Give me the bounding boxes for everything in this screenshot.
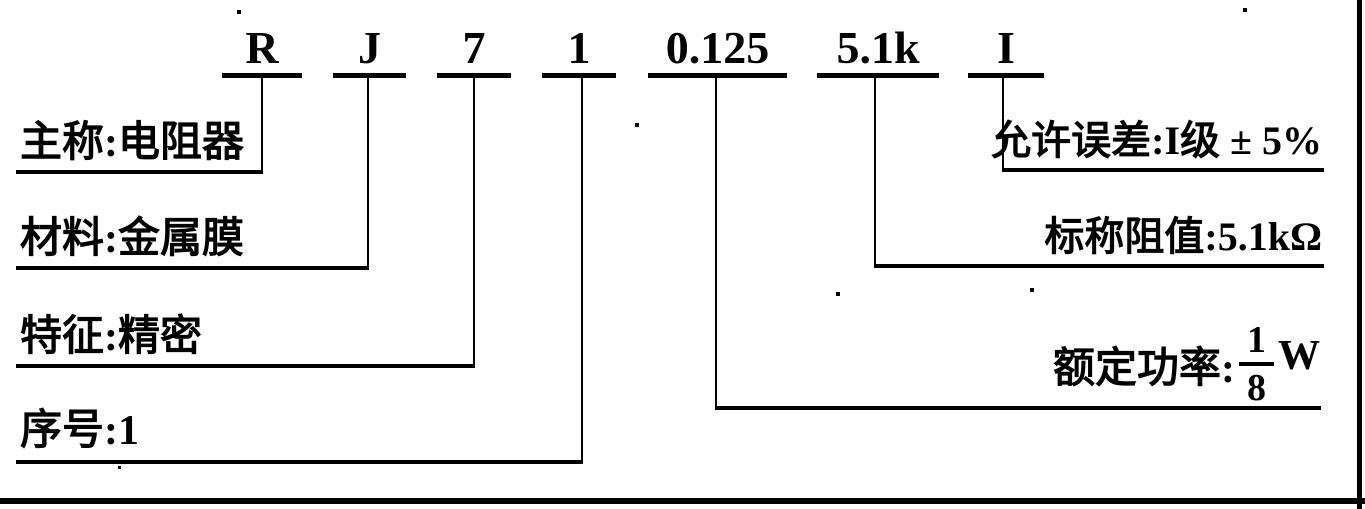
frame-border-right (1357, 0, 1362, 509)
rated-power-fraction: 1 8 (1239, 320, 1274, 408)
rated-power-unit: W (1278, 332, 1320, 380)
code-underline (542, 73, 616, 78)
rule-line-main-name (16, 170, 263, 174)
label-resistance: 标称阻值:5.1kΩ (1044, 212, 1322, 262)
connector-line-serial (581, 78, 583, 462)
rule-line-serial (16, 460, 583, 464)
speckle (237, 10, 241, 14)
code-symbol-material: J (333, 24, 406, 78)
fraction-numerator: 1 (1239, 320, 1274, 366)
code-symbol-resistance: 5.1k (817, 24, 939, 78)
code-symbol-text: I (968, 24, 1044, 72)
code-symbol-text: 1 (542, 24, 616, 72)
speckle (1030, 288, 1034, 292)
rule-line-resistance (874, 264, 1324, 268)
connector-line-material (367, 78, 369, 268)
code-symbol-tolerance: I (968, 24, 1044, 78)
speckle (635, 123, 639, 127)
rule-line-feature (16, 364, 475, 368)
connector-line-main-name (261, 78, 263, 172)
code-underline (817, 73, 939, 78)
label-tolerance: 允许误差:I级 ± 5% (991, 116, 1322, 166)
label-rated-power: 额定功率: 1 8 W (1053, 320, 1320, 408)
rule-line-tolerance (1002, 168, 1324, 172)
speckle (1243, 8, 1247, 12)
code-symbol-text: 7 (437, 24, 511, 72)
connector-line-feature (473, 78, 475, 366)
code-symbol-feature: 7 (437, 24, 511, 78)
fraction-denominator: 8 (1247, 366, 1266, 408)
connector-line-power (715, 78, 717, 409)
frame-border-bottom (0, 498, 1365, 504)
rule-line-material (16, 266, 369, 270)
speckle (836, 292, 840, 296)
code-symbol-text: J (333, 24, 406, 72)
code-symbol-power: 0.125 (648, 24, 787, 78)
label-serial: 序号:1 (20, 406, 139, 456)
code-underline (648, 73, 787, 78)
label-material: 材料:金属膜 (20, 214, 244, 264)
code-underline (968, 73, 1044, 78)
code-symbol-text: R (222, 24, 302, 72)
resistor-code-diagram: R J 7 1 0.125 5.1k I 主称:电阻器 材料:金属膜 特征:精密… (0, 0, 1365, 509)
code-symbol-main-name: R (222, 24, 302, 78)
code-symbol-text: 0.125 (648, 24, 787, 72)
code-underline (333, 73, 406, 78)
connector-line-resistance (874, 78, 876, 266)
rule-line-rated-power (715, 406, 1321, 410)
label-main-name: 主称:电阻器 (20, 118, 244, 168)
rated-power-prefix: 额定功率: (1053, 334, 1235, 395)
label-feature: 特征:精密 (20, 312, 202, 362)
speckle (118, 466, 121, 469)
code-symbol-serial: 1 (542, 24, 616, 78)
code-symbol-text: 5.1k (817, 24, 939, 72)
